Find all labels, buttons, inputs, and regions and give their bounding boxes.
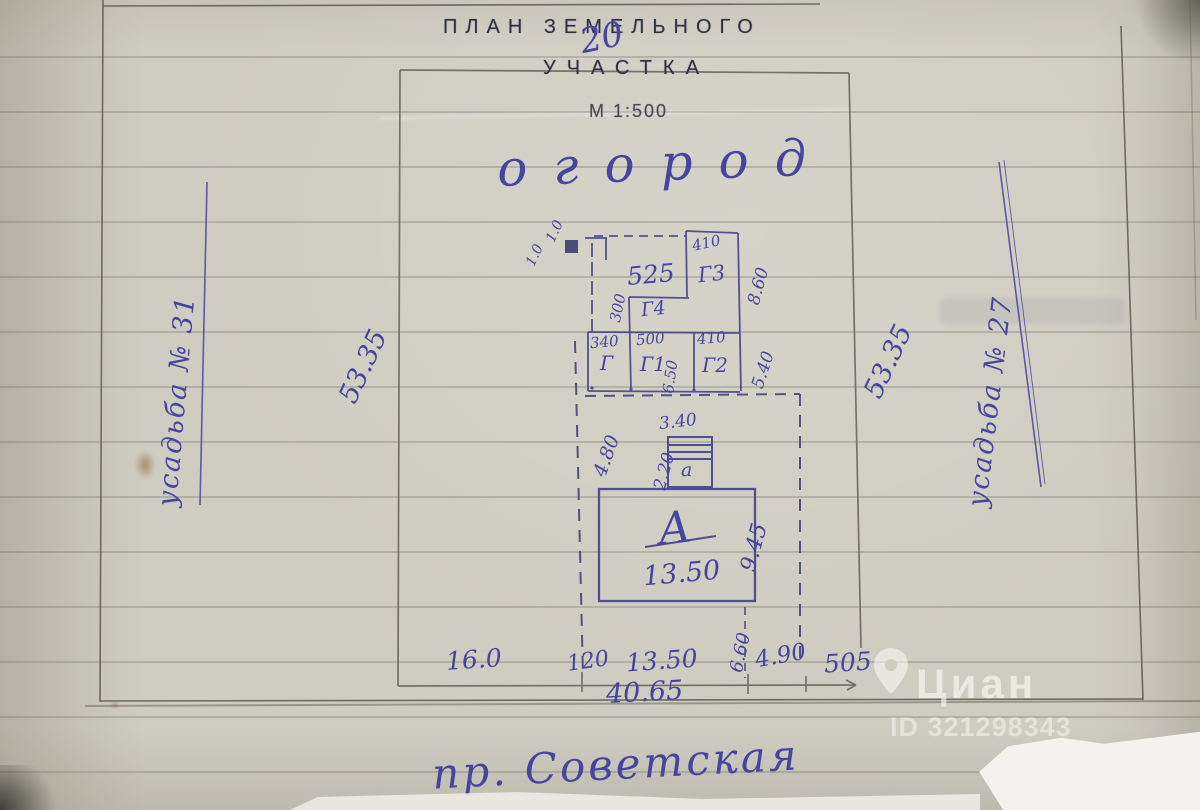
scanned-land-plan-page: ПЛАН ЗЕМЕЛЬНОГО УЧАСТКА М 1:500 20 огоро… [0, 0, 1200, 810]
bottom-dim-1: 16.0 [445, 643, 503, 676]
g3-height-dim: 8.60 [744, 265, 773, 307]
plan-title-line2: УЧАСТКА [543, 57, 710, 80]
annex-offset-side-dim: 2.20 [650, 450, 679, 492]
annex-offset-top-dim: 4.80 [589, 432, 624, 479]
side-length-right: 53.35 [858, 320, 919, 403]
torn-edge-bottom-strip [290, 790, 980, 810]
bottom-dim-5: 505 [823, 646, 873, 678]
top-right-shadow [1130, 0, 1200, 60]
ghost-stamp-smudge [940, 298, 1125, 324]
annex-label: а [681, 459, 692, 481]
row-height-dim: 5.40 [748, 349, 779, 391]
g4-label: Г4 [640, 297, 667, 321]
corner-square-dim-a: 1.0 [523, 242, 547, 269]
garden-label: огород [496, 128, 833, 198]
plot-number-overlay: 20 [576, 14, 627, 62]
g2-width-dim: 410 [696, 328, 726, 348]
bottom-left-shadow [0, 765, 60, 810]
left-margin-note: усадьба № 31 [152, 293, 201, 507]
watermark-brand: Циан [916, 660, 1037, 708]
watermark-pin-icon [874, 648, 908, 694]
row-inner-height-dim: 6.50 [659, 359, 681, 395]
bottom-dim-3: 13.50 [625, 644, 698, 678]
bottom-total-dim: 40.65 [605, 675, 684, 710]
right-margin-note: усадьба № 27 [962, 294, 1019, 509]
annex-width-dim: 3.40 [658, 410, 698, 434]
g-width-dim: 340 [589, 332, 619, 352]
bottom-dim-4: 4.90 [753, 639, 808, 673]
mid-height-dim: 300 [606, 292, 630, 324]
g3-width-dim: 410 [690, 231, 722, 255]
house-depth-dim: 9.45 [736, 521, 773, 575]
g1-width-dim: 500 [635, 329, 665, 349]
house-offset-right-dim: 6.60 [726, 631, 755, 675]
paper-stain [134, 450, 156, 480]
g-label: Г [600, 351, 613, 375]
plan-scale: М 1:500 [589, 101, 668, 122]
g2-label: Г2 [702, 353, 728, 377]
house-width-dim: 13.50 [642, 555, 722, 593]
watermark-id: ID 321298343 [890, 712, 1072, 743]
corner-square-dim-b: 1.0 [543, 218, 567, 245]
g3-label: Г3 [697, 261, 727, 288]
paper-stain-small [110, 700, 120, 710]
bottom-dim-2: 120 [565, 646, 610, 677]
mid-width-dim: 525 [626, 258, 676, 291]
side-length-left: 53.35 [333, 325, 394, 408]
street-label: пр. Советская [431, 730, 801, 798]
house-label: А [655, 501, 693, 555]
